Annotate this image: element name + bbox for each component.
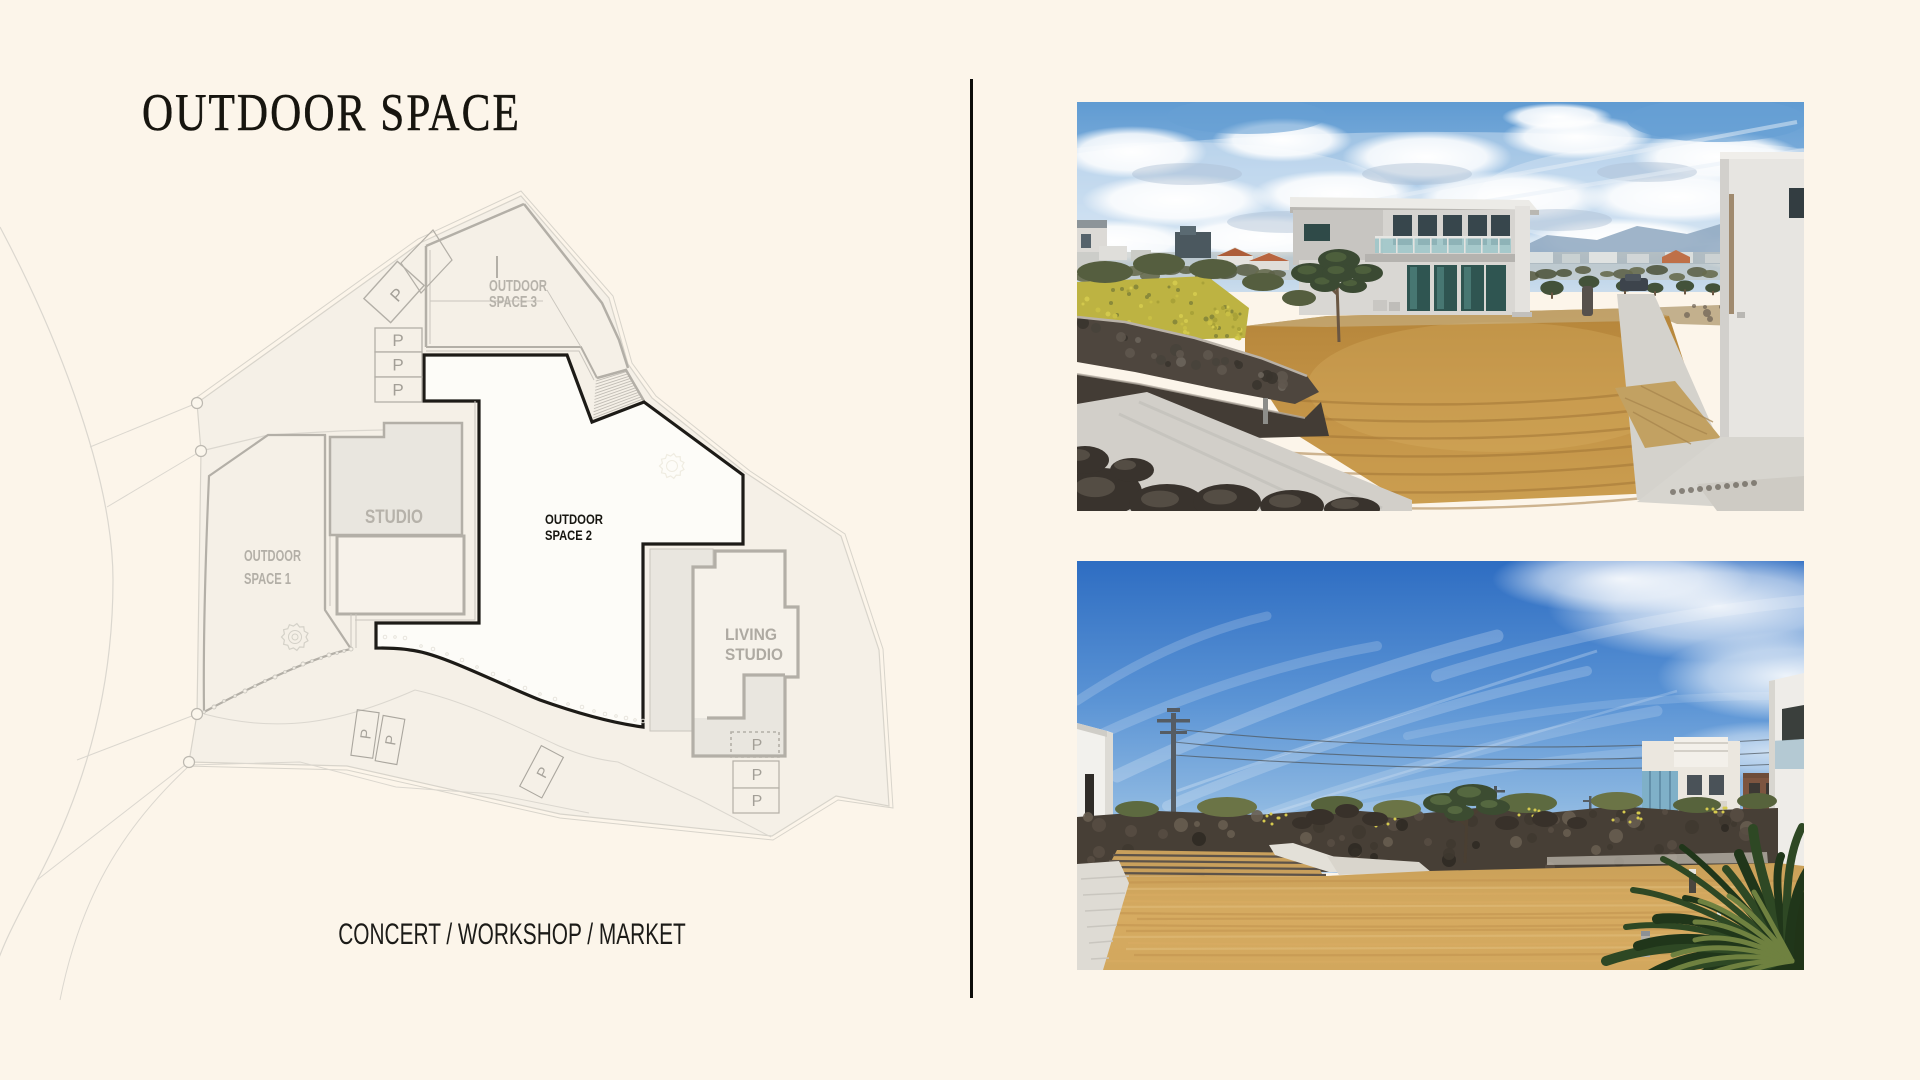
svg-text:P: P bbox=[752, 737, 763, 754]
svg-text:STUDIO: STUDIO bbox=[365, 507, 423, 528]
svg-text:P: P bbox=[752, 767, 763, 784]
svg-text:SPACE 1: SPACE 1 bbox=[244, 571, 291, 588]
svg-text:OUTDOOR: OUTDOOR bbox=[489, 278, 547, 295]
svg-text:LIVING: LIVING bbox=[725, 625, 777, 644]
svg-text:P: P bbox=[752, 793, 763, 810]
svg-text:OUTDOOR: OUTDOOR bbox=[244, 548, 301, 565]
svg-text:STUDIO: STUDIO bbox=[725, 645, 783, 664]
svg-text:OUTDOOR: OUTDOOR bbox=[545, 512, 603, 527]
svg-text:SPACE 2: SPACE 2 bbox=[545, 528, 592, 543]
svg-text:P: P bbox=[392, 356, 403, 375]
svg-text:P: P bbox=[392, 381, 403, 400]
svg-text:P: P bbox=[392, 331, 403, 350]
svg-text:SPACE 3: SPACE 3 bbox=[489, 294, 537, 311]
